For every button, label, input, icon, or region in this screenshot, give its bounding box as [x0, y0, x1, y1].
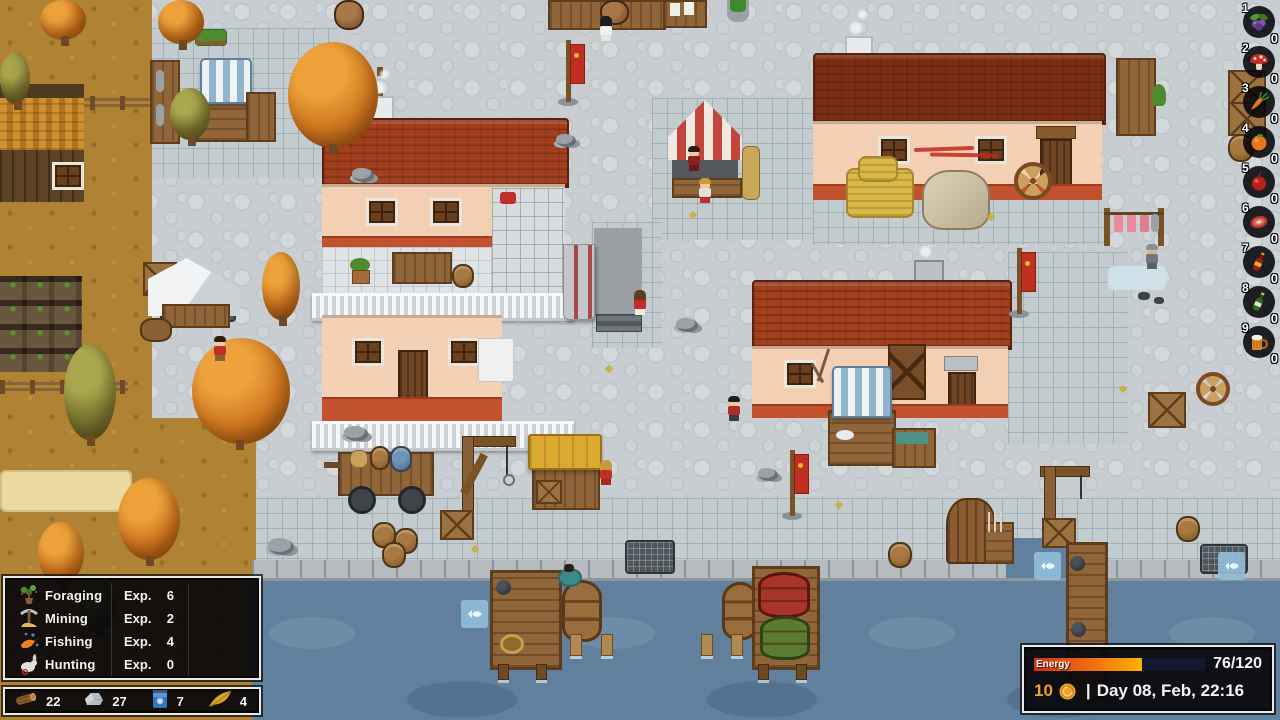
- teal-cloth: [896, 432, 928, 444]
- slot-number: 7: [1242, 241, 1249, 255]
- hotbar-slot-3[interactable]: 3 0: [1241, 83, 1278, 123]
- skills-panel: Foraging Exp.6 Mining Exp.2 Fishing Exp.…: [3, 576, 261, 680]
- barrel: [382, 542, 406, 568]
- dock-bumper: [1071, 622, 1086, 637]
- mooring-post: [570, 634, 582, 656]
- npc-villager[interactable]: [598, 460, 614, 486]
- red-banner: [1021, 252, 1036, 292]
- green-boat: [760, 616, 810, 660]
- resource-count: 4: [240, 694, 247, 709]
- rocks: [352, 168, 374, 182]
- resources-bar: 22 27 7 4: [3, 687, 261, 715]
- hotbar-slot-4[interactable]: 4 0: [1241, 123, 1278, 163]
- fishing-net: [625, 540, 675, 574]
- rocks: [344, 426, 368, 441]
- base-stripe: [322, 397, 502, 423]
- work-table: [162, 304, 230, 328]
- pier-leg: [758, 664, 769, 680]
- posted-paper: [684, 2, 694, 15]
- blue-barrel: [390, 446, 412, 472]
- slot-count: 0: [1271, 231, 1278, 246]
- green-plant: [730, 0, 746, 12]
- npc-tent-vendor[interactable]: [686, 146, 702, 172]
- rope-coil: [500, 634, 524, 654]
- stone-steps: [596, 314, 642, 332]
- npc-villager[interactable]: [726, 396, 742, 422]
- hanging-fish: [1151, 214, 1159, 232]
- hotbar-slot-7[interactable]: 7 0: [1241, 243, 1278, 283]
- flower-box: [500, 192, 516, 204]
- resource-count: 7: [177, 694, 184, 709]
- pier-leg: [498, 664, 509, 680]
- exp-value: 2: [167, 611, 174, 626]
- cart-wheel: [348, 486, 376, 514]
- autumn-tree: [38, 522, 84, 584]
- door: [948, 372, 976, 408]
- red-boat: [758, 572, 810, 618]
- slot-count: 0: [1271, 351, 1278, 366]
- npc-hooded-figure[interactable]: [1144, 244, 1160, 270]
- sapling-icon: [13, 583, 45, 607]
- sand-path: [0, 470, 132, 512]
- cart-handle: [324, 462, 340, 468]
- fishing-spot: [461, 600, 488, 628]
- basket: [140, 318, 172, 342]
- fish-icon: [466, 608, 484, 620]
- npc-customer[interactable]: [697, 178, 713, 204]
- crate: [1148, 392, 1186, 428]
- autumn-tree: [118, 478, 180, 560]
- posted-paper: [670, 3, 680, 16]
- fish-fillet: [1140, 215, 1149, 232]
- bench: [392, 252, 452, 284]
- hotbar-slot-8[interactable]: 8 0: [1241, 283, 1278, 323]
- hotbar-slot-6[interactable]: 6 0: [1241, 203, 1278, 243]
- window: [975, 136, 1007, 164]
- hanging-sheet: [478, 338, 514, 382]
- npc-villager[interactable]: [598, 16, 614, 42]
- autumn-tree: [158, 0, 204, 44]
- plate: [836, 430, 854, 440]
- farm-field: [0, 276, 82, 372]
- datetime: Day 08, Feb, 22:16: [1097, 681, 1244, 701]
- window: [366, 198, 398, 226]
- resource-stone: 27: [83, 689, 126, 714]
- mooring-post: [601, 634, 613, 656]
- rocks: [556, 134, 576, 147]
- dock-bumper: [496, 580, 511, 595]
- barrel: [370, 446, 390, 470]
- npc-villager[interactable]: [632, 290, 648, 316]
- status-panel: Energy 76/120 10 | Day 08, Feb, 22:16: [1022, 645, 1274, 713]
- striped-drape: [563, 244, 595, 320]
- fishing-icon: [13, 629, 45, 653]
- pier-leg: [796, 664, 807, 680]
- slot-number: 5: [1242, 161, 1249, 175]
- wagon-wheel: [1196, 372, 1230, 406]
- exp-value: 6: [167, 588, 174, 603]
- energy-label: Energy: [1036, 658, 1070, 671]
- olive-tree: [64, 344, 116, 440]
- window: [430, 198, 462, 226]
- crate: [440, 510, 474, 540]
- game-viewport[interactable]: Foraging Exp.6 Mining Exp.2 Fishing Exp.…: [0, 0, 1280, 720]
- pier-leg: [536, 664, 547, 680]
- rocks: [758, 468, 778, 481]
- red-banner: [570, 44, 585, 84]
- hanging-fish: [156, 70, 164, 92]
- skill-row-fishing: Fishing Exp.4: [13, 629, 255, 652]
- skill-row-foraging: Foraging Exp.6: [13, 583, 255, 606]
- smoke: [920, 246, 931, 257]
- fishing-rod: [994, 510, 996, 532]
- slot-number: 2: [1242, 41, 1249, 55]
- olive-tree: [170, 88, 210, 140]
- wagon-wheel: [1014, 162, 1052, 200]
- skill-row-hunting: Hunting Exp.0: [13, 652, 255, 675]
- blue-pouch-icon: [150, 688, 170, 715]
- slot-number: 4: [1242, 121, 1249, 135]
- autumn-tree: [40, 0, 86, 40]
- blue-awning: [200, 58, 252, 104]
- side-shelf: [246, 92, 276, 142]
- resource-wood: 22: [13, 689, 60, 714]
- yellow-tarp: [528, 434, 602, 470]
- fish-icon: [1223, 560, 1241, 572]
- barrel: [888, 542, 912, 568]
- exp-label: Exp.: [124, 634, 151, 649]
- exp-label: Exp.: [124, 611, 151, 626]
- barn-door: [888, 344, 926, 400]
- fishing-rod: [988, 512, 990, 532]
- slot-count: 0: [1271, 191, 1278, 206]
- crow: [1154, 297, 1164, 304]
- slot-count: 0: [1271, 71, 1278, 86]
- skill-name: Hunting: [45, 657, 111, 672]
- skill-name: Mining: [45, 611, 111, 626]
- window: [448, 338, 480, 366]
- wooden-rack: [1116, 58, 1156, 136]
- plant-pot: [352, 270, 370, 284]
- hay-bale: [858, 156, 898, 182]
- fish-fillet: [1114, 215, 1123, 232]
- hotbar-slot-1[interactable]: 1 0: [1241, 3, 1278, 43]
- red-roof: [813, 53, 1106, 125]
- resource-feather: 4: [207, 689, 247, 714]
- exp-label: Exp.: [124, 657, 151, 672]
- slot-count: 0: [1271, 311, 1278, 326]
- fish-sign: [944, 356, 978, 371]
- slot-number: 6: [1242, 201, 1249, 215]
- exp-label: Exp.: [124, 588, 151, 603]
- resource-count: 22: [46, 694, 60, 709]
- slot-count: 0: [1271, 111, 1278, 126]
- hotbar-slot-9[interactable]: 9 0: [1241, 323, 1278, 363]
- hotbar: 1 0 2 0 3 0 4 0 5 0 6 0 7: [1241, 3, 1278, 363]
- crate: [536, 480, 562, 504]
- coin-count: 10: [1034, 681, 1053, 701]
- rabbit-icon: [13, 652, 45, 676]
- cart-wheel: [398, 486, 426, 514]
- autumn-tree: [192, 338, 290, 444]
- skill-name: Foraging: [45, 588, 111, 603]
- resource-count: 27: [112, 694, 126, 709]
- fishing-rod: [1000, 512, 1002, 532]
- coin-icon: [1059, 683, 1076, 700]
- barrel: [1176, 516, 1200, 542]
- fishing-spot: [1034, 552, 1061, 580]
- crane-rope: [1080, 475, 1082, 499]
- crow: [1138, 292, 1150, 300]
- smoke: [858, 10, 867, 19]
- slot-number: 3: [1242, 81, 1249, 95]
- crane-rope: [506, 445, 508, 475]
- hotbar-slot-5[interactable]: 5 0: [1241, 163, 1278, 203]
- fishing-spot: [1218, 552, 1245, 580]
- clay-pot: [334, 0, 364, 30]
- olive-tree: [0, 52, 30, 104]
- wood-log-icon: [13, 689, 39, 714]
- hanging-fish: [156, 104, 164, 126]
- potted-plant: [1152, 84, 1166, 106]
- hotbar-slot-2[interactable]: 2 0: [1241, 43, 1278, 83]
- energy-value: 76/120: [1213, 655, 1262, 673]
- rowboat: [562, 580, 602, 642]
- red-roof: [752, 280, 1012, 350]
- resource-pouch: 7: [150, 688, 184, 715]
- pickaxe-icon: [13, 606, 45, 630]
- blue-awning: [832, 366, 892, 418]
- exp-value: 4: [167, 634, 174, 649]
- slot-count: 0: [1271, 151, 1278, 166]
- mooring-post: [731, 634, 743, 656]
- covered-boat: [922, 170, 990, 230]
- barrel: [452, 264, 474, 288]
- swimmer-head: [564, 564, 574, 572]
- sack: [350, 450, 368, 468]
- window: [352, 338, 384, 366]
- door: [398, 350, 428, 400]
- mooring-post: [701, 634, 713, 656]
- skill-name: Fishing: [45, 634, 111, 649]
- slot-number: 1: [1242, 1, 1249, 15]
- crane-hook: [503, 474, 515, 486]
- rocks: [676, 318, 698, 332]
- stone-icon: [83, 689, 105, 714]
- feather-icon: [207, 689, 233, 714]
- datetime-row: 10 | Day 08, Feb, 22:16: [1034, 681, 1262, 701]
- slot-count: 0: [1271, 31, 1278, 46]
- smoke: [380, 70, 389, 79]
- npc-villager[interactable]: [212, 336, 228, 362]
- skill-row-mining: Mining Exp.2: [13, 606, 255, 629]
- separator: |: [1086, 681, 1091, 701]
- smoke: [850, 22, 862, 34]
- exp-value: 0: [167, 657, 174, 672]
- red-banner: [794, 454, 809, 494]
- shop-sign: [742, 146, 760, 200]
- slot-number: 8: [1242, 281, 1249, 295]
- dock-bumper: [1070, 556, 1085, 571]
- slot-number: 9: [1242, 321, 1249, 335]
- energy-row: Energy 76/120: [1034, 655, 1262, 673]
- door-awning: [1036, 126, 1076, 139]
- autumn-tree: [288, 42, 378, 148]
- fish-icon: [1039, 560, 1057, 572]
- autumn-tree: [262, 252, 300, 320]
- fish-fillet: [1127, 215, 1136, 232]
- rocks: [268, 538, 294, 555]
- window: [52, 162, 84, 190]
- slot-count: 0: [1271, 271, 1278, 286]
- energy-bar: Energy: [1034, 658, 1205, 671]
